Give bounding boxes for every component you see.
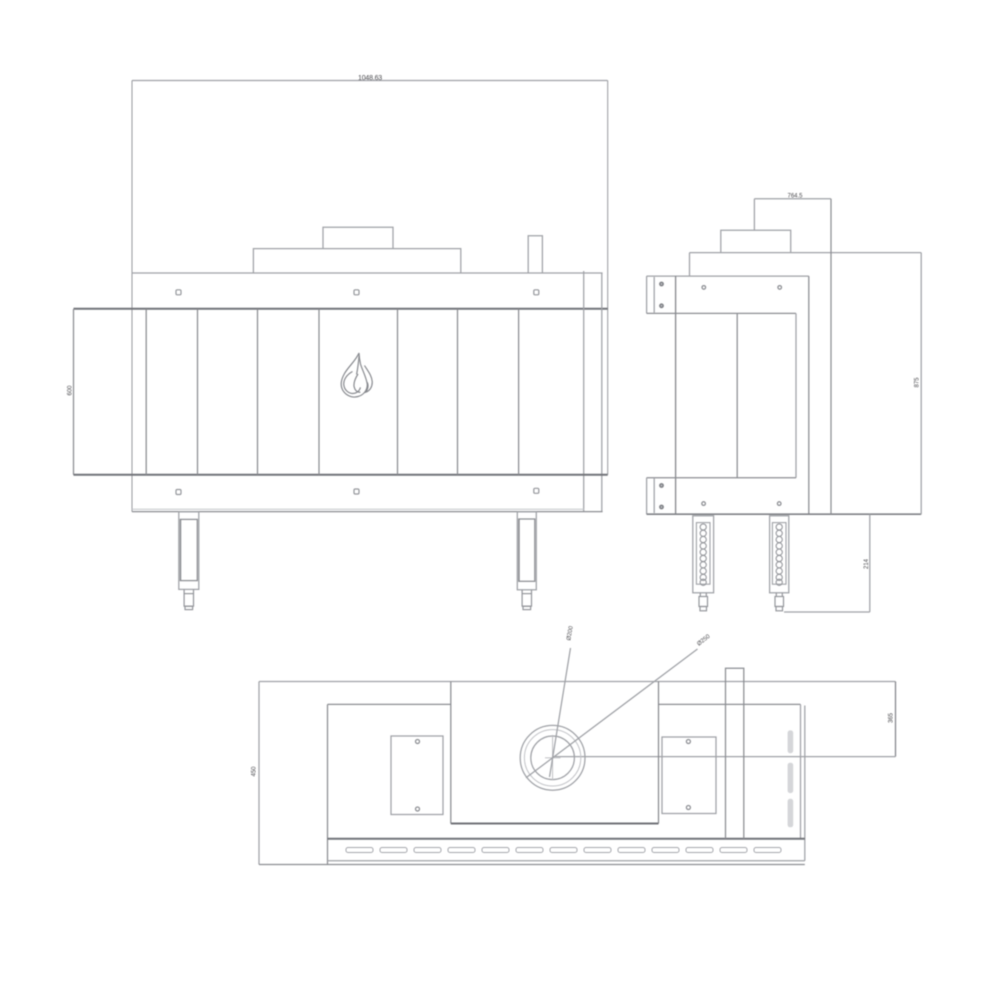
svg-text:600: 600	[68, 385, 74, 396]
svg-text:214: 214	[864, 558, 870, 569]
svg-text:365: 365	[888, 712, 894, 723]
svg-text:875: 875	[914, 377, 920, 388]
svg-text:Ø200: Ø200	[566, 625, 575, 641]
svg-text:450: 450	[251, 766, 257, 777]
svg-text:Ø250: Ø250	[696, 633, 712, 647]
